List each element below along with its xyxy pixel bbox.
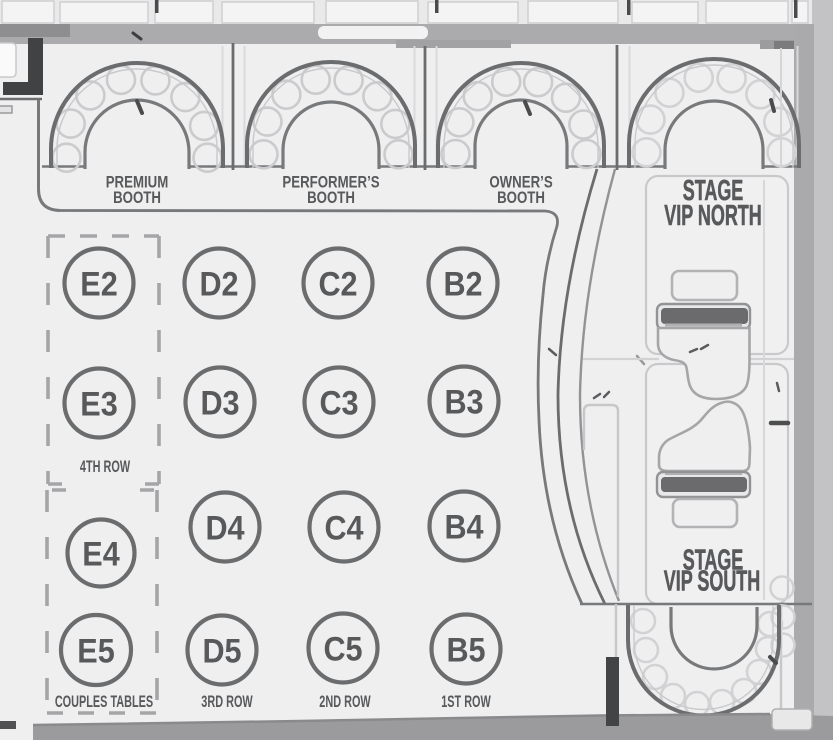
svg-text:C3: C3 [319, 384, 358, 422]
svg-text:BOOTH: BOOTH [497, 189, 545, 208]
svg-text:C4: C4 [324, 509, 363, 547]
svg-text:D5: D5 [202, 632, 241, 670]
svg-text:3RD ROW: 3RD ROW [201, 692, 253, 711]
svg-text:VIP NORTH: VIP NORTH [664, 200, 762, 232]
svg-text:B5: B5 [446, 631, 485, 669]
svg-text:B4: B4 [444, 508, 483, 546]
svg-text:4TH ROW: 4TH ROW [80, 457, 131, 476]
svg-text:E5: E5 [77, 632, 114, 670]
svg-text:BOOTH: BOOTH [307, 189, 355, 208]
svg-text:E4: E4 [82, 535, 119, 573]
svg-text:VIP SOUTH: VIP SOUTH [664, 565, 761, 597]
svg-text:D4: D4 [205, 509, 244, 547]
svg-text:E2: E2 [80, 265, 117, 303]
svg-text:B2: B2 [443, 265, 482, 303]
svg-text:C5: C5 [323, 630, 362, 668]
svg-text:C2: C2 [318, 265, 357, 303]
svg-text:COUPLES TABLES: COUPLES TABLES [55, 692, 153, 711]
svg-text:BOOTH: BOOTH [113, 189, 161, 208]
svg-text:B3: B3 [444, 383, 483, 421]
svg-text:D2: D2 [199, 265, 238, 303]
svg-text:2ND ROW: 2ND ROW [319, 692, 371, 711]
svg-text:1ST ROW: 1ST ROW [441, 692, 491, 711]
svg-text:D3: D3 [200, 384, 239, 422]
svg-text:E3: E3 [80, 385, 117, 423]
